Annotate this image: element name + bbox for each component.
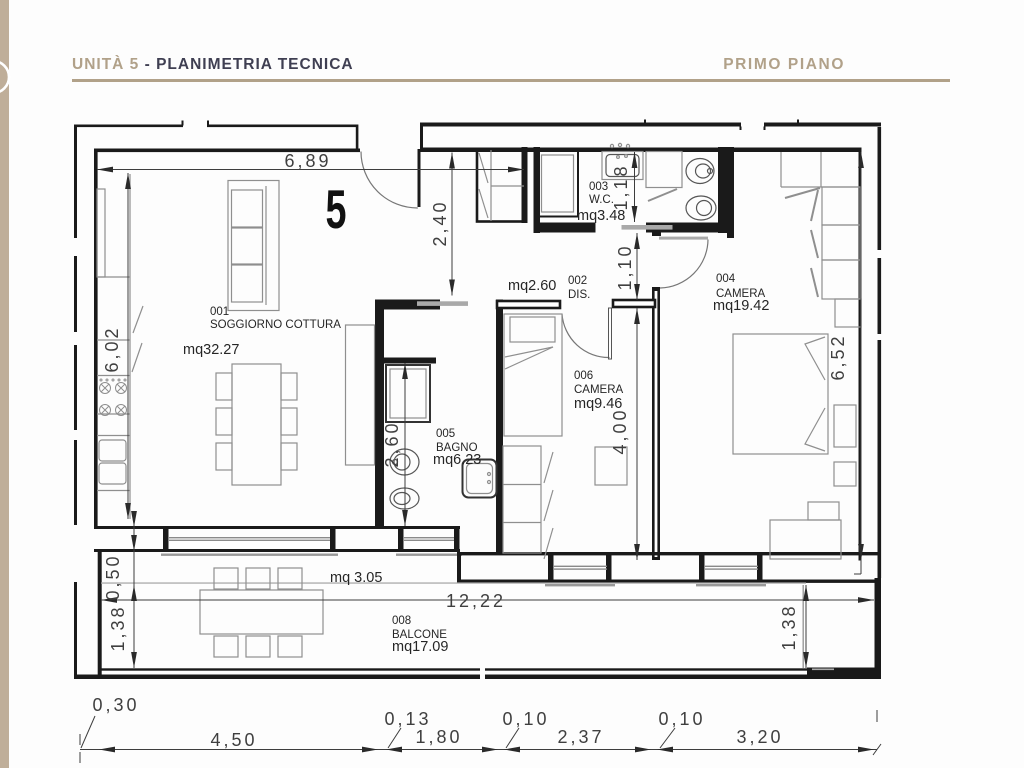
svg-text:mq9.46: mq9.46 — [574, 396, 622, 412]
svg-text:001: 001 — [210, 306, 229, 318]
svg-text:005: 005 — [436, 428, 455, 440]
svg-text:4,00: 4,00 — [610, 407, 630, 454]
svg-text:0,50: 0,50 — [103, 553, 123, 600]
svg-text:CAMERA: CAMERA — [574, 384, 624, 396]
svg-text:DIS.: DIS. — [568, 289, 590, 301]
svg-text:mq32.27: mq32.27 — [183, 342, 239, 358]
svg-text:12,22: 12,22 — [446, 591, 506, 611]
svg-text:1,10: 1,10 — [615, 243, 635, 290]
svg-text:1,18: 1,18 — [611, 163, 631, 210]
svg-text:1,38: 1,38 — [779, 603, 799, 650]
svg-text:2,40: 2,40 — [430, 199, 450, 246]
svg-text:1,80: 1,80 — [415, 727, 462, 747]
svg-text:W.C.: W.C. — [589, 194, 614, 206]
svg-text:008: 008 — [392, 615, 411, 627]
svg-text:mq19.42: mq19.42 — [713, 298, 769, 314]
svg-text:3,20: 3,20 — [736, 727, 783, 747]
svg-text:006: 006 — [574, 370, 593, 382]
svg-text:mq6.23: mq6.23 — [433, 452, 481, 468]
svg-text:mq2.60: mq2.60 — [508, 278, 556, 294]
svg-text:003: 003 — [589, 181, 608, 193]
svg-text:mq 3.05: mq 3.05 — [330, 570, 382, 586]
svg-text:6,02: 6,02 — [102, 325, 122, 372]
svg-text:SOGGIORNO COTTURA: SOGGIORNO COTTURA — [210, 319, 341, 331]
svg-text:mq17.09: mq17.09 — [392, 639, 448, 655]
svg-text:6,89: 6,89 — [284, 151, 331, 171]
svg-text:6,52: 6,52 — [828, 333, 848, 380]
svg-text:0,13: 0,13 — [384, 709, 431, 729]
svg-text:0,10: 0,10 — [502, 709, 549, 729]
svg-text:4,50: 4,50 — [210, 730, 257, 750]
svg-text:0,10: 0,10 — [658, 709, 705, 729]
svg-text:002: 002 — [568, 275, 587, 287]
svg-text:1,38: 1,38 — [108, 604, 128, 651]
svg-text:5: 5 — [326, 178, 347, 240]
svg-text:004: 004 — [716, 273, 736, 285]
svg-text:2,37: 2,37 — [557, 727, 604, 747]
svg-text:0,30: 0,30 — [92, 695, 139, 715]
svg-text:mq3.48: mq3.48 — [577, 208, 625, 224]
svg-text:2,60: 2,60 — [382, 420, 402, 467]
